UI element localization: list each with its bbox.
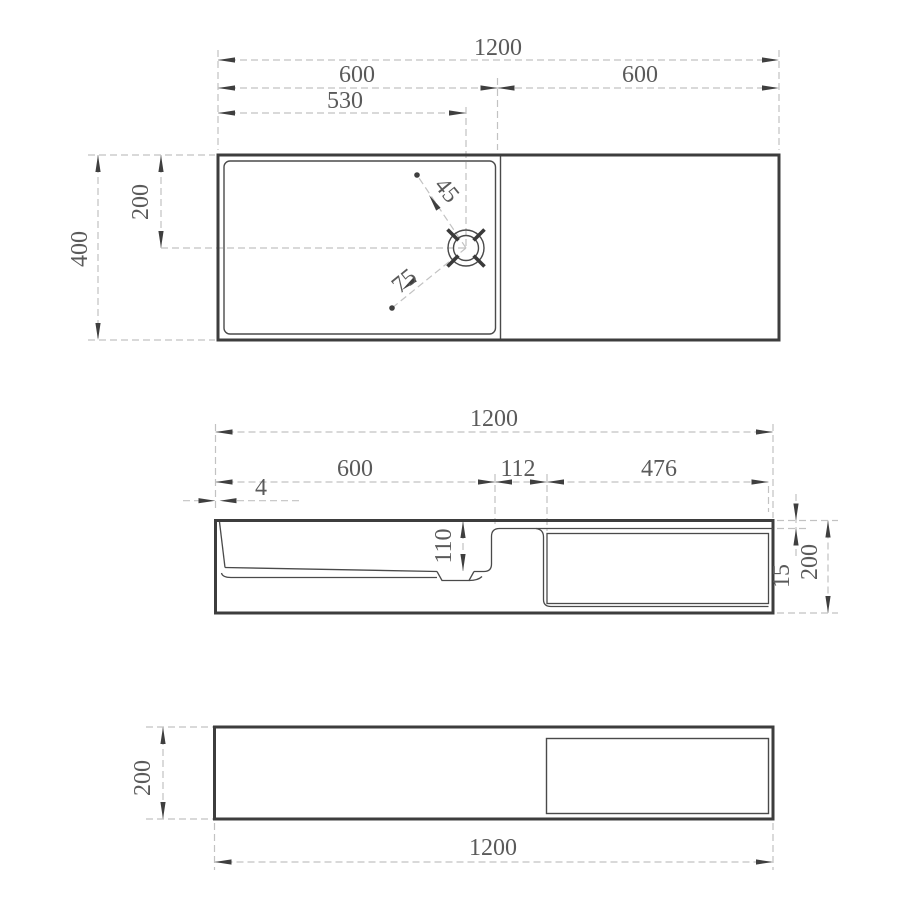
niche-opening-reveal xyxy=(536,529,769,607)
dim-front-niche-width: 476 xyxy=(641,456,677,482)
dim-front-deck-thickness: 15 xyxy=(769,564,795,588)
dim-arrow xyxy=(460,521,465,538)
dim-arrow xyxy=(481,85,498,90)
dim-arrow xyxy=(756,429,773,434)
dim-arrow xyxy=(158,231,163,248)
dim-arrow xyxy=(498,85,515,90)
dim-top-drain-y: 200 xyxy=(128,184,154,220)
basin-bottom-lower-line xyxy=(222,573,438,578)
dim-top-basin-width: 600 xyxy=(339,62,375,88)
basin-bottom-upper-line xyxy=(225,568,437,572)
dim-arrow xyxy=(449,110,466,115)
dim-arrow xyxy=(793,529,798,546)
basin-right-wall-and-deck-line xyxy=(474,529,773,572)
dim-arrow xyxy=(218,110,235,115)
dim-arrow xyxy=(95,155,100,172)
front-view-dimension-lines xyxy=(183,424,838,613)
dim-arrow xyxy=(756,859,773,864)
niche-inner-box xyxy=(547,534,769,604)
dim-front-basin-depth: 110 xyxy=(431,528,457,563)
dim-arrow xyxy=(752,479,769,484)
dim-front-basin-width: 600 xyxy=(337,456,373,482)
dim-front-overall-width: 1200 xyxy=(470,406,518,432)
drain-recess-notch xyxy=(437,572,474,581)
dim-arrow xyxy=(218,57,235,62)
front-view-outline xyxy=(216,521,774,614)
dim-bottom-overall-width: 1200 xyxy=(469,835,517,861)
dim-arrow xyxy=(762,57,779,62)
top-view-outline xyxy=(218,155,779,340)
dim-top-drain-x: 530 xyxy=(327,88,363,114)
front-view-profile xyxy=(220,522,774,607)
dim-arrow xyxy=(199,498,216,503)
dim-arrow xyxy=(825,596,830,613)
dim-drain-leader-b: 75 xyxy=(387,264,422,299)
dim-arrow xyxy=(762,85,779,90)
drawing-canvas: 1200 600 600 530 400 200 45 75 xyxy=(0,0,900,899)
bottom-view-dimension-lines xyxy=(146,727,773,870)
leader-end-dot xyxy=(414,172,420,178)
dim-arrow xyxy=(218,85,235,90)
basin-left-wall-line xyxy=(220,522,226,568)
dim-arrow xyxy=(216,479,233,484)
bottom-niche-opening xyxy=(547,739,769,814)
bottom-view-arrows xyxy=(160,727,773,865)
dim-front-overall-height: 200 xyxy=(797,544,823,580)
dim-top-overall-width: 1200 xyxy=(474,35,522,61)
dim-arrow xyxy=(825,521,830,538)
bottom-view-outline xyxy=(215,727,774,819)
dim-top-shelf-width: 600 xyxy=(622,62,658,88)
dim-front-rim-lip: 4 xyxy=(255,475,267,501)
dim-arrow xyxy=(216,429,233,434)
dim-arrow xyxy=(478,479,495,484)
dim-arrow xyxy=(95,323,100,340)
dim-arrow xyxy=(158,155,163,172)
front-view: 1200 600 112 476 4 110 15 200 xyxy=(183,406,838,613)
technical-drawing: 1200 600 600 530 400 200 45 75 xyxy=(0,0,900,899)
dim-arrow xyxy=(460,554,465,571)
dim-bottom-overall-height: 200 xyxy=(130,760,156,796)
bottom-view: 200 1200 xyxy=(130,727,773,870)
dim-arrow xyxy=(160,802,165,819)
dim-arrow xyxy=(547,479,564,484)
leader-end-dot xyxy=(389,305,395,311)
top-view: 1200 600 600 530 400 200 45 75 xyxy=(67,35,779,340)
dim-arrow xyxy=(793,504,798,521)
dim-arrow xyxy=(220,498,237,503)
dim-front-partition-width: 112 xyxy=(500,456,535,482)
dim-arrow xyxy=(215,859,232,864)
dim-arrow xyxy=(160,727,165,744)
dim-top-overall-depth: 400 xyxy=(67,231,93,267)
